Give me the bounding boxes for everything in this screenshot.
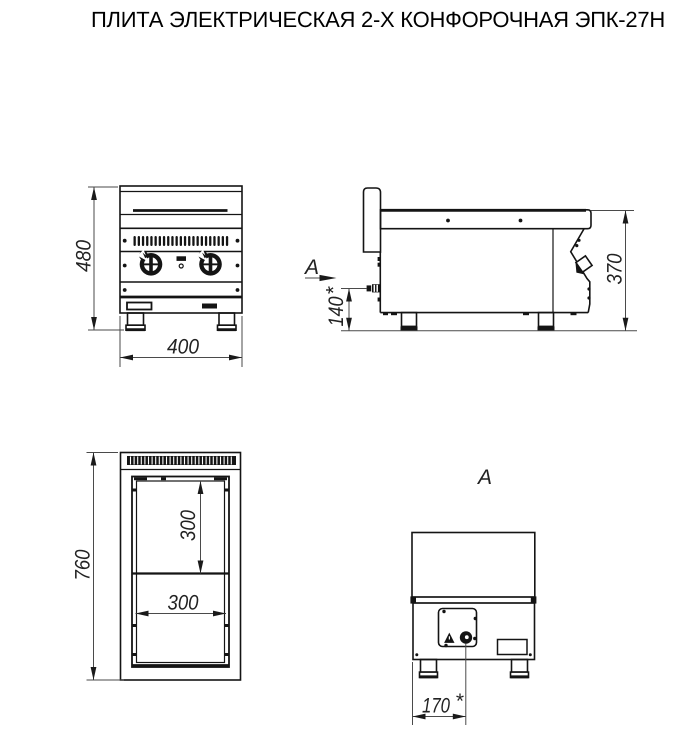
svg-text:760: 760 (72, 549, 95, 580)
svg-text:400: 400 (167, 336, 199, 359)
svg-text:140: 140 (325, 296, 348, 326)
svg-text:170: 170 (422, 695, 450, 718)
svg-text:480: 480 (73, 240, 96, 272)
svg-text:300: 300 (177, 510, 200, 541)
svg-text:*: * (323, 286, 346, 295)
svg-text:300: 300 (168, 592, 199, 615)
svg-text:А: А (303, 256, 319, 279)
svg-text:*: * (455, 690, 464, 713)
svg-text:370: 370 (604, 253, 627, 284)
svg-text:А: А (476, 466, 492, 489)
